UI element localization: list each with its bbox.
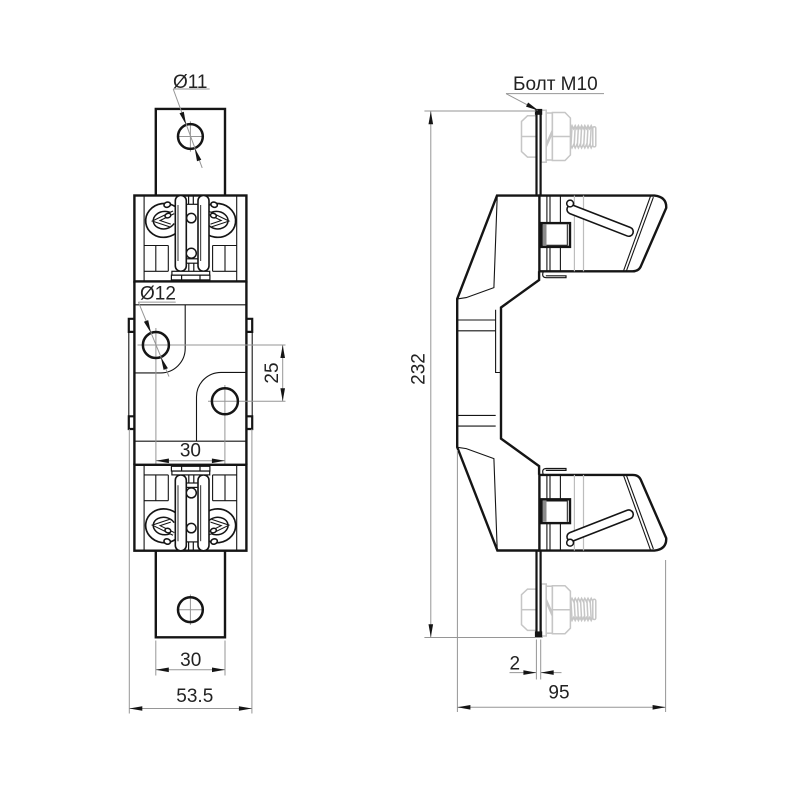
svg-text:Ø11: Ø11 [173,72,208,93]
svg-text:25: 25 [262,362,283,383]
svg-text:2: 2 [510,654,521,675]
svg-text:53.5: 53.5 [176,686,213,707]
svg-text:Болт М10: Болт М10 [513,74,598,95]
svg-text:30: 30 [180,650,201,671]
svg-text:Ø12: Ø12 [140,284,176,305]
svg-text:30: 30 [180,440,201,461]
svg-text:232: 232 [409,353,430,385]
svg-text:95: 95 [548,683,569,704]
